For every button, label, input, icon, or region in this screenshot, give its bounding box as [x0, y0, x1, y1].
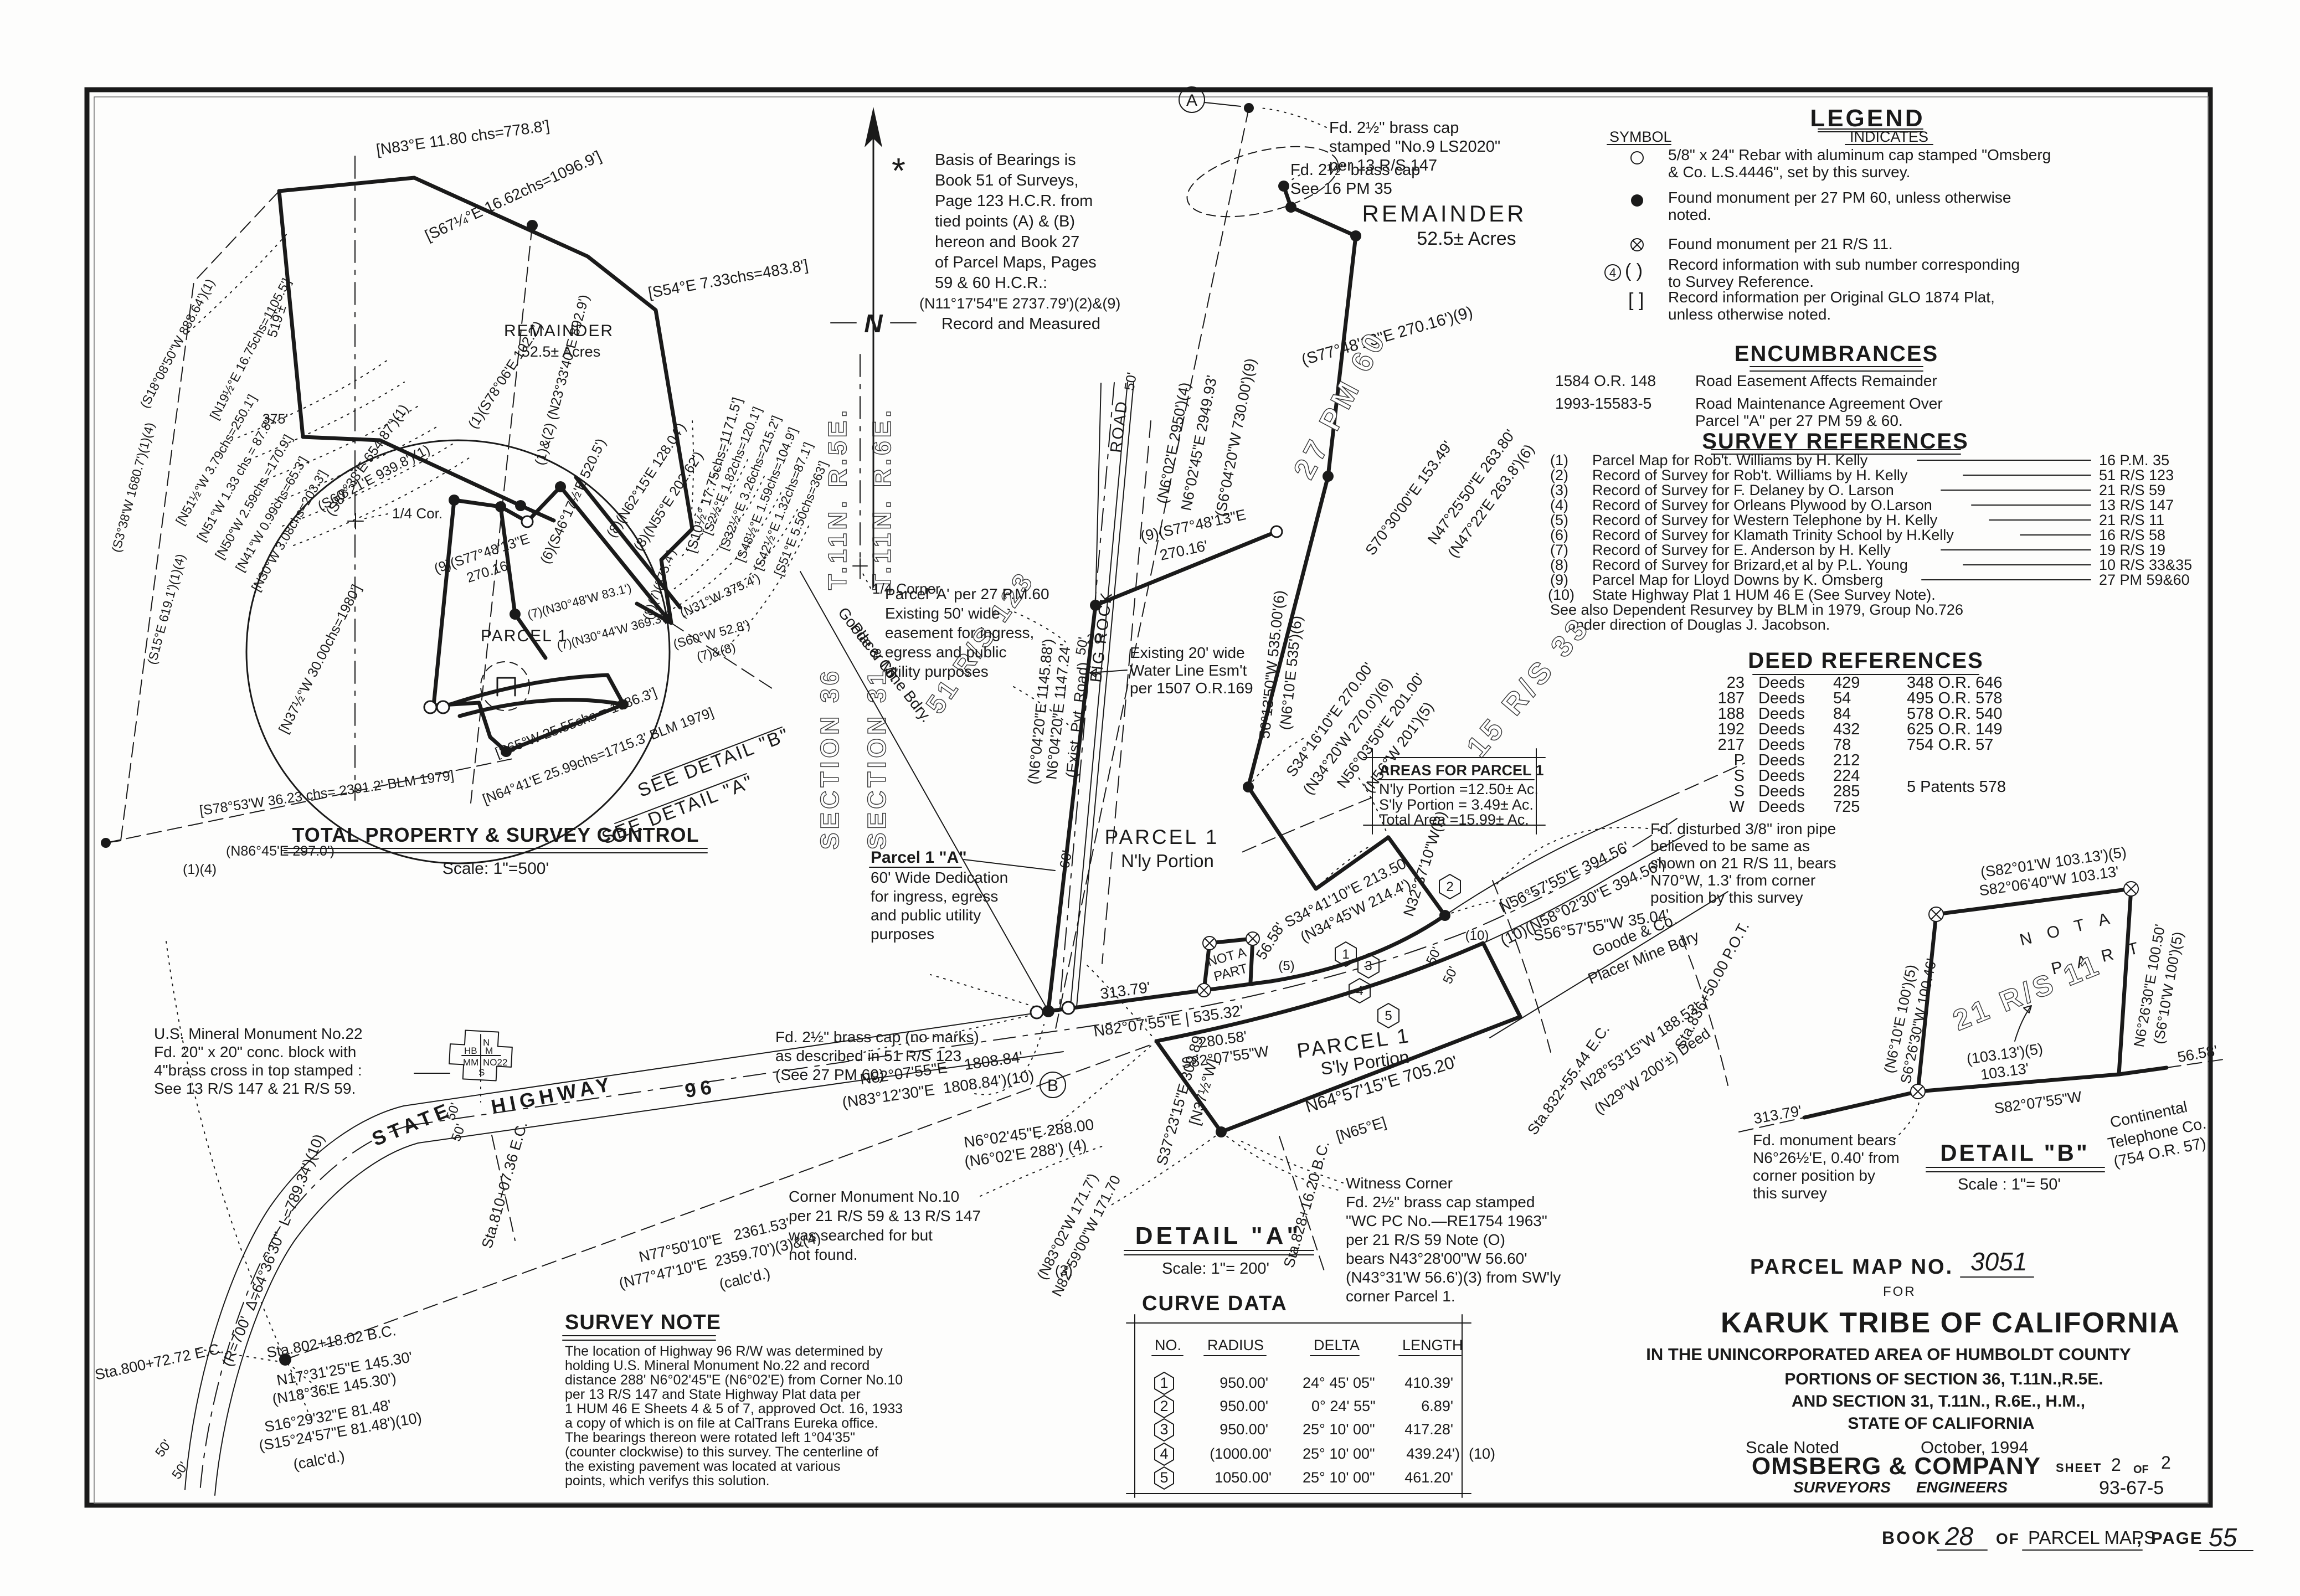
svg-text:SURVEY NOTE: SURVEY NOTE: [565, 1311, 721, 1334]
svg-text:2: 2: [2161, 1453, 2171, 1473]
svg-text:per 13 R/S 147 and State Highw: per 13 R/S 147 and State Highway Plat da…: [565, 1387, 861, 1402]
svg-text:A: A: [1186, 91, 1197, 110]
svg-text:950.00': 950.00': [1220, 1374, 1268, 1391]
svg-text:The location of Highway 96 R/W: The location of Highway 96 R/W was deter…: [565, 1343, 883, 1359]
svg-text:16 P.M. 35: 16 P.M. 35: [2099, 452, 2169, 468]
svg-text:Scale: 1"= 200': Scale: 1"= 200': [1162, 1260, 1269, 1278]
svg-text:noted.: noted.: [1668, 206, 1711, 223]
svg-text:Total Area =15.99± Ac.: Total Area =15.99± Ac.: [1379, 811, 1529, 828]
svg-text:93-67-5: 93-67-5: [2099, 1477, 2164, 1499]
svg-text:10 R/S 33&35: 10 R/S 33&35: [2099, 557, 2192, 573]
svg-text:DETAIL "B": DETAIL "B": [1940, 1140, 2090, 1166]
svg-text:SHEET: SHEET: [2056, 1461, 2102, 1475]
svg-text:21 R/S 59: 21 R/S 59: [2099, 482, 2165, 498]
svg-text:N'ly Portion: N'ly Portion: [1121, 851, 1214, 871]
svg-text:(9): (9): [1550, 572, 1568, 588]
svg-text:3: 3: [1160, 1421, 1168, 1438]
svg-text:Fd. 20" x 20" conc. block with: Fd. 20" x 20" conc. block with: [154, 1043, 356, 1060]
svg-text:1: 1: [1160, 1374, 1168, 1391]
svg-text:REMAINDER: REMAINDER: [1362, 200, 1526, 226]
svg-text:[ ]: [ ]: [1628, 290, 1644, 311]
svg-text:Parcel Map for Rob't. Williams: Parcel Map for Rob't. Williams by H. Kel…: [1592, 452, 1868, 468]
svg-text:BOOK: BOOK: [1882, 1528, 1942, 1548]
svg-text:a copy of which is on file at: a copy of which is on file at CalTrans E…: [565, 1415, 878, 1431]
svg-text:Deeds: Deeds: [1758, 798, 1805, 816]
svg-text:4: 4: [1356, 984, 1363, 998]
svg-text:5/8" x 24" Rebar with aluminum: 5/8" x 24" Rebar with aluminum cap stamp…: [1668, 146, 2051, 163]
svg-text:State Highway Plat 1 HUM 46 E: State Highway Plat 1 HUM 46 E (See Surve…: [1592, 586, 1936, 603]
svg-text:N6°26½'E, 0.40' from: N6°26½'E, 0.40' from: [1753, 1149, 1900, 1166]
svg-text:W: W: [1730, 798, 1745, 816]
svg-text:60': 60': [1057, 849, 1075, 869]
svg-text:(7): (7): [1550, 542, 1568, 558]
svg-text:and public utility: and public utility: [871, 907, 981, 924]
svg-text:1993-15583-5: 1993-15583-5: [1555, 395, 1651, 412]
svg-text:Fd. monument bears: Fd. monument bears: [1753, 1131, 1896, 1149]
svg-text:4"brass cross in top stamped :: 4"brass cross in top stamped :: [154, 1062, 362, 1079]
svg-text:754 O.R. 57: 754 O.R. 57: [1907, 736, 1993, 754]
svg-text:21 R/S 11: 21 R/S 11: [2099, 512, 2164, 528]
svg-text:M: M: [485, 1046, 493, 1056]
svg-text:5: 5: [1385, 1008, 1392, 1023]
svg-text:25° 10' 00": 25° 10' 00": [1303, 1445, 1375, 1462]
svg-text:Fd. 2½" brass cap: Fd. 2½" brass cap: [1329, 119, 1459, 137]
svg-text:2: 2: [1160, 1398, 1168, 1414]
svg-text:Existing 20' wide: Existing 20' wide: [1130, 644, 1245, 661]
svg-text:LEGEND: LEGEND: [1810, 105, 1925, 132]
svg-text:,: ,: [2137, 1528, 2142, 1548]
svg-text:tied points (A) & (B): tied points (A) & (B): [935, 213, 1075, 230]
svg-text:easement for ingress,: easement for ingress,: [885, 624, 1034, 641]
svg-text:2: 2: [2111, 1455, 2121, 1475]
svg-text:13 R/S 147: 13 R/S 147: [2099, 497, 2174, 513]
svg-text:60' Wide Dedication: 60' Wide Dedication: [871, 869, 1008, 886]
svg-text:*: *: [892, 151, 905, 191]
svg-text:position by this survey: position by this survey: [1650, 889, 1803, 906]
svg-text:Witness Corner: Witness Corner: [1346, 1175, 1453, 1192]
svg-text:hereon and Book 27: hereon and Book 27: [935, 233, 1079, 251]
svg-text:TOTAL PROPERTY & SURVEY CONTRO: TOTAL PROPERTY & SURVEY CONTROL: [292, 823, 699, 846]
svg-text:( ): ( ): [1625, 260, 1643, 281]
svg-text:Water Line Esm't: Water Line Esm't: [1130, 662, 1247, 679]
svg-text:2: 2: [1446, 879, 1453, 894]
svg-text:points, which verifys this sol: points, which verifys this solution.: [565, 1473, 770, 1489]
svg-text:5 Patents 578: 5 Patents 578: [1907, 778, 2006, 796]
svg-text:DELTA: DELTA: [1314, 1337, 1360, 1353]
svg-text:950.00': 950.00': [1220, 1421, 1268, 1438]
svg-text:19 R/S 19: 19 R/S 19: [2099, 542, 2165, 558]
svg-text:ENCUMBRANCES: ENCUMBRANCES: [1735, 342, 1938, 366]
svg-text:Record of Survey for Brizard,e: Record of Survey for Brizard,et al by P.…: [1592, 557, 1908, 573]
svg-text:PAGE: PAGE: [2151, 1528, 2203, 1548]
svg-text:OF: OF: [2133, 1464, 2149, 1476]
svg-text:(3): (3): [1055, 1262, 1073, 1279]
svg-text:Record information per Origina: Record information per Original GLO 1874…: [1668, 289, 1995, 306]
svg-text:Existing 50' wide: Existing 50' wide: [885, 605, 1000, 622]
svg-text:52.5± Acres: 52.5± Acres: [1417, 228, 1516, 249]
svg-text:the existing pavement was loca: the existing pavement was located at var…: [565, 1459, 841, 1474]
svg-text:5: 5: [1160, 1469, 1168, 1486]
svg-text:55: 55: [2209, 1523, 2237, 1552]
svg-text:0° 24' 55": 0° 24' 55": [1311, 1398, 1376, 1414]
svg-text:Parcel "A" per 27 PM 59 & 60.: Parcel "A" per 27 PM 59 & 60.: [1695, 412, 1903, 429]
svg-text:20': 20': [1087, 632, 1104, 647]
svg-text:"WC PC No.—RE1754 1963": "WC PC No.—RE1754 1963": [1346, 1212, 1547, 1229]
svg-text:96: 96: [683, 1075, 718, 1102]
svg-text:Record information with sub nu: Record information with sub number corre…: [1668, 256, 2020, 273]
svg-text:U.S. Mineral Monument No.22: U.S. Mineral Monument No.22: [154, 1025, 363, 1042]
svg-text:SECTION 31: SECTION 31: [862, 668, 891, 850]
svg-text:S: S: [478, 1067, 485, 1078]
svg-text:NO.: NO.: [1155, 1337, 1181, 1353]
svg-text:to Survey Reference.: to Survey Reference.: [1668, 273, 1814, 290]
svg-text:of Parcel Maps, Pages: of Parcel Maps, Pages: [935, 254, 1097, 271]
svg-text:(10): (10): [1465, 928, 1489, 943]
svg-text:4: 4: [1160, 1445, 1168, 1462]
svg-text:950.00': 950.00': [1220, 1398, 1268, 1414]
svg-text:(8): (8): [1550, 557, 1568, 573]
svg-text:PARCEL 1: PARCEL 1: [481, 627, 568, 645]
svg-text:(1): (1): [1550, 452, 1568, 468]
svg-text:Found monument per 27 PM 60, u: Found monument per 27 PM 60, unless othe…: [1668, 189, 2011, 206]
svg-text:stamped "No.9 LS2020": stamped "No.9 LS2020": [1329, 138, 1500, 156]
svg-text:461.20': 461.20': [1404, 1469, 1453, 1486]
svg-text:Road Maintenance Agreement Ove: Road Maintenance Agreement Over: [1695, 395, 1943, 412]
svg-text:MM: MM: [463, 1057, 478, 1068]
svg-text:LENGTH: LENGTH: [1402, 1337, 1463, 1353]
svg-text:Basis of Bearings is: Basis of Bearings is: [935, 151, 1076, 169]
svg-text:(2): (2): [1550, 467, 1568, 483]
svg-text:N'ly Portion =12.50± Ac.: N'ly Portion =12.50± Ac.: [1379, 781, 1539, 797]
svg-text:1 HUM 46 E Sheets 4 & 5 of 7,: 1 HUM 46 E Sheets 4 & 5 of 7, approved O…: [565, 1401, 903, 1417]
svg-text:(6): (6): [1550, 527, 1568, 543]
svg-text:N: N: [864, 309, 883, 338]
svg-text:SURVEYORS: SURVEYORS: [1793, 1479, 1891, 1496]
svg-text:B: B: [1047, 1077, 1058, 1095]
svg-text:Parcel Map for Lloyd Downs by: Parcel Map for Lloyd Downs by K. Omsberg: [1592, 572, 1883, 588]
svg-text:Fd. 2½" brass cap stamped: Fd. 2½" brass cap stamped: [1346, 1193, 1535, 1211]
svg-text:HB: HB: [464, 1046, 477, 1056]
svg-text:holding U.S. Mineral Monument: holding U.S. Mineral Monument No.22 and …: [565, 1358, 869, 1373]
svg-text:16 R/S 58: 16 R/S 58: [2099, 527, 2165, 543]
svg-text:SYMBOL: SYMBOL: [1609, 128, 1672, 145]
svg-text:KARUK TRIBE OF CALIFORNIA: KARUK TRIBE OF CALIFORNIA: [1721, 1307, 2180, 1339]
svg-text:Record of Survey for F. Delane: Record of Survey for F. Delaney by O. La…: [1592, 482, 1894, 498]
svg-text:25° 10' 00": 25° 10' 00": [1303, 1469, 1375, 1486]
svg-text:under direction of Douglas J.: under direction of Douglas J. Jacobson.: [1567, 616, 1830, 633]
svg-text:FOR: FOR: [1883, 1284, 1916, 1299]
svg-text:distance 288' N6°02'45"E (N6°0: distance 288' N6°02'45"E (N6°02'E) from …: [565, 1372, 903, 1388]
svg-text:S'ly Portion = 3.49± Ac.: S'ly Portion = 3.49± Ac.: [1379, 796, 1534, 813]
svg-text:Scale : 1"= 50': Scale : 1"= 50': [1958, 1176, 2061, 1193]
svg-text:Record of Survey for Western T: Record of Survey for Western Telephone b…: [1592, 512, 1938, 528]
svg-text:4: 4: [1609, 266, 1616, 280]
svg-text:1: 1: [1342, 947, 1349, 962]
svg-text:(N11°17'54"E 2737.79')(2)&(9): (N11°17'54"E 2737.79')(2)&(9): [919, 295, 1120, 312]
svg-text:PARCEL MAP NO.: PARCEL MAP NO.: [1750, 1255, 1953, 1279]
svg-text:27 PM 59&60: 27 PM 59&60: [2099, 572, 2190, 588]
svg-text:See 16 PM 35: See 16 PM 35: [1290, 180, 1392, 198]
svg-text:Page 123 H.C.R. from: Page 123 H.C.R. from: [935, 192, 1093, 210]
svg-text:(1)(4): (1)(4): [183, 862, 217, 877]
svg-text:OF: OF: [1996, 1530, 2020, 1547]
svg-text:shown on 21 R/S 11, bears: shown on 21 R/S 11, bears: [1650, 854, 1836, 872]
svg-text:(10): (10): [1469, 1445, 1495, 1462]
svg-text:egress and public: egress and public: [885, 643, 1006, 661]
svg-text:1050.00': 1050.00': [1215, 1469, 1272, 1486]
svg-text:IN THE UNINCORPORATED AREA OF: IN THE UNINCORPORATED AREA OF HUMBOLDT C…: [1646, 1345, 2131, 1364]
svg-text:PORTIONS OF SECTION 36, T.11N.: PORTIONS OF SECTION 36, T.11N.,R.5E.: [1784, 1370, 2103, 1388]
svg-text:(5): (5): [1550, 512, 1568, 528]
svg-text:CURVE DATA: CURVE DATA: [1142, 1292, 1288, 1315]
svg-text:AND SECTION 31, T.11N., R.6E.,: AND SECTION 31, T.11N., R.6E., H.M.,: [1792, 1392, 2085, 1410]
svg-text:Fd. 2½" brass cap (no marks): Fd. 2½" brass cap (no marks): [775, 1028, 979, 1046]
svg-text:(N43°31'W 56.6')(3) from SW'ly: (N43°31'W 56.6')(3) from SW'ly: [1346, 1269, 1561, 1286]
svg-text:725: 725: [1833, 798, 1860, 816]
svg-text:439.24'): 439.24'): [1406, 1445, 1460, 1462]
svg-text:NO22: NO22: [483, 1057, 507, 1068]
svg-text:Record of Survey for Klamath T: Record of Survey for Klamath Trinity Sch…: [1592, 527, 1954, 543]
svg-text:See also Dependent Resurvey by: See also Dependent Resurvey by BLM in 19…: [1550, 601, 1963, 618]
svg-text:(10): (10): [1548, 586, 1575, 603]
svg-text:STATE OF CALIFORNIA: STATE OF CALIFORNIA: [1848, 1414, 2034, 1433]
svg-text:bears N43°28'00"W 56.60': bears N43°28'00"W 56.60': [1346, 1250, 1527, 1267]
svg-text:25° 10' 00": 25° 10' 00": [1303, 1421, 1375, 1438]
svg-text:Record of Survey for Rob't. Wi: Record of Survey for Rob't. Williams by …: [1592, 467, 1908, 483]
svg-text:purposes: purposes: [871, 925, 934, 943]
svg-text:Scale: 1"=500': Scale: 1"=500': [442, 859, 549, 878]
svg-text:& Co. L.S.4446", set by this s: & Co. L.S.4446", set by this survey.: [1668, 163, 1910, 181]
svg-text:INDICATES: INDICATES: [1850, 128, 1928, 145]
svg-text:Road Easement Affects Remainde: Road Easement Affects Remainder: [1695, 372, 1937, 389]
svg-text:Parcel 1 "A": Parcel 1 "A": [871, 848, 967, 867]
svg-text:Found monument per 21 R/S 11.: Found monument per 21 R/S 11.: [1668, 235, 1893, 253]
svg-text:417.28': 417.28': [1404, 1421, 1453, 1438]
svg-text:this survey: this survey: [1753, 1185, 1827, 1202]
svg-text:corner position by: corner position by: [1753, 1167, 1875, 1184]
svg-text:PARCEL 1: PARCEL 1: [1105, 826, 1220, 848]
svg-text:50': 50': [1121, 371, 1140, 392]
svg-text:(counter clockwise) to this su: (counter clockwise) to this survey. The …: [565, 1444, 878, 1460]
svg-text:See 13 R/S 147 & 21 R/S 59.: See 13 R/S 147 & 21 R/S 59.: [154, 1080, 356, 1097]
svg-text:per 1507 O.R.169: per 1507 O.R.169: [1130, 679, 1253, 697]
svg-text:51 R/S 123: 51 R/S 123: [2099, 467, 2174, 483]
svg-text:Fd. 2½" brass cap: Fd. 2½" brass cap: [1290, 161, 1420, 179]
svg-text:6.89': 6.89': [1421, 1398, 1453, 1414]
svg-text:unless otherwise noted.: unless otherwise noted.: [1668, 306, 1831, 323]
svg-text:DETAIL "A": DETAIL "A": [1135, 1222, 1302, 1249]
svg-text:Parcel 'A' per 27 P.M.60: Parcel 'A' per 27 P.M.60: [885, 585, 1049, 603]
svg-text:(4): (4): [1550, 497, 1568, 513]
svg-text:corner Parcel 1.: corner Parcel 1.: [1346, 1288, 1455, 1305]
svg-text:T.11N. R.5E.: T.11N. R.5E.: [823, 407, 852, 590]
svg-text:(3): (3): [1550, 482, 1568, 498]
svg-text:SECTION 36: SECTION 36: [815, 668, 844, 850]
svg-text:REMAINDER: REMAINDER: [504, 322, 614, 340]
svg-text:(5): (5): [1278, 959, 1294, 974]
svg-text:410.39': 410.39': [1404, 1374, 1453, 1391]
svg-text:3: 3: [1365, 959, 1372, 974]
svg-text:Record and Measured: Record and Measured: [941, 315, 1100, 333]
svg-text:ENGINEERS: ENGINEERS: [1916, 1479, 2008, 1496]
svg-text:(1000.00': (1000.00': [1210, 1445, 1272, 1462]
svg-text:believed to be same as: believed to be same as: [1650, 837, 1810, 854]
svg-text:Record of Survey for Orleans P: Record of Survey for Orleans Plywood by …: [1592, 497, 1932, 513]
svg-text:52.5± Acres: 52.5± Acres: [522, 343, 600, 360]
svg-text:Corner Monument No.10: Corner Monument No.10: [789, 1188, 959, 1205]
svg-text:for ingress, egress: for ingress, egress: [871, 888, 998, 905]
svg-text:59 & 60 H.C.R.:: 59 & 60 H.C.R.:: [935, 274, 1047, 292]
svg-text:AREAS FOR PARCEL 1: AREAS FOR PARCEL 1: [1379, 762, 1544, 779]
svg-text:T.11N. R.6E.: T.11N. R.6E.: [867, 407, 896, 590]
svg-text:DEED REFERENCES: DEED REFERENCES: [1748, 648, 1984, 673]
svg-text:3051: 3051: [1970, 1247, 2027, 1276]
svg-text:24° 45' 05": 24° 45' 05": [1303, 1374, 1375, 1391]
svg-text:The bearings thereon were rota: The bearings thereon were rotated left 1…: [565, 1430, 855, 1445]
svg-text:28: 28: [1944, 1522, 1974, 1551]
svg-text:N70°W, 1.3' from corner: N70°W, 1.3' from corner: [1650, 872, 1815, 889]
svg-text:per 21 R/S 59 Note (O): per 21 R/S 59 Note (O): [1346, 1231, 1505, 1248]
svg-text:Fd. disturbed 3/8" iron pipe: Fd. disturbed 3/8" iron pipe: [1650, 820, 1836, 837]
svg-text:Book 51 of Surveys,: Book 51 of Surveys,: [935, 172, 1079, 189]
svg-text:1584 O.R. 148: 1584 O.R. 148: [1555, 372, 1656, 389]
svg-text:RADIUS: RADIUS: [1207, 1337, 1264, 1353]
svg-text:1/4 Cor.: 1/4 Cor.: [392, 505, 442, 522]
svg-text:per 21 R/S 59 & 13 R/S 147: per 21 R/S 59 & 13 R/S 147: [789, 1207, 981, 1224]
svg-text:Record of Survey for E. Anders: Record of Survey for E. Anderson by H. K…: [1592, 542, 1891, 558]
svg-text:OMSBERG & COMPANY: OMSBERG & COMPANY: [1752, 1453, 2041, 1480]
